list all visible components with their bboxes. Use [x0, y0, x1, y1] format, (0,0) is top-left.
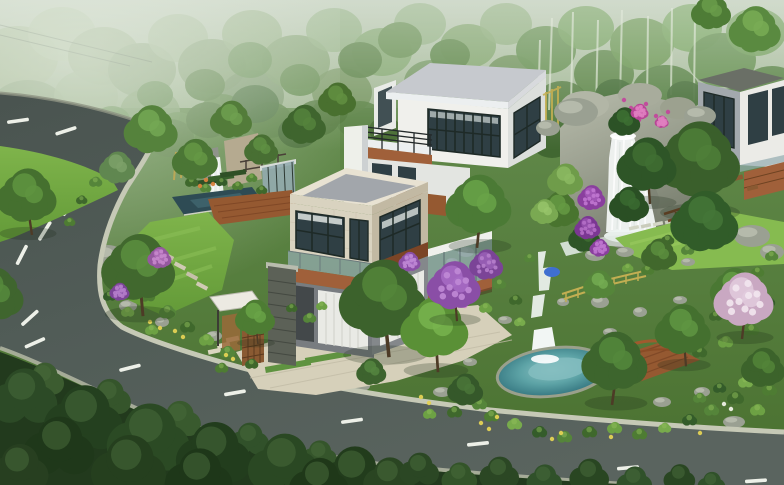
tree-foliage-light	[544, 207, 552, 215]
tree-foliage-light	[381, 284, 407, 310]
tree-foliage-light	[613, 350, 633, 370]
blossom-dot	[487, 260, 491, 264]
rock-highlight	[738, 227, 758, 237]
blossom-dot	[582, 221, 586, 225]
blossom-dot	[411, 264, 415, 268]
blossom-dot	[459, 294, 465, 300]
forest-tree-light	[626, 469, 640, 483]
flower-dot	[666, 110, 670, 114]
flower-dot	[495, 415, 499, 419]
blossom-dot	[493, 266, 497, 270]
rock-highlight	[435, 388, 445, 393]
blossom-dot	[159, 249, 163, 253]
rock-highlight	[674, 297, 682, 301]
tree-foliage-light	[558, 203, 570, 215]
blossom-dot	[163, 254, 167, 258]
blossom-dot	[749, 308, 756, 315]
bush-highlight	[732, 392, 738, 398]
rock-highlight	[538, 122, 551, 129]
blossom-dot	[593, 228, 597, 232]
blossom-dot	[409, 258, 413, 262]
forest-tree-light	[240, 425, 256, 441]
pond-foam	[531, 355, 559, 364]
tree-foliage-light	[762, 360, 775, 373]
tree-foliage-light	[710, 5, 722, 17]
blossom-dot	[482, 264, 486, 268]
bush-highlight	[224, 347, 230, 353]
tree-shadow	[657, 359, 710, 371]
bush-highlight	[249, 174, 253, 178]
tree-foliage-light	[753, 21, 769, 37]
blossom-dot	[591, 223, 595, 227]
bush-highlight	[697, 393, 702, 398]
blossom-dot	[591, 188, 595, 192]
blossom-dot	[756, 301, 763, 308]
flower-dot	[722, 402, 726, 406]
blossom-dot	[492, 260, 496, 264]
bush-highlight	[611, 423, 617, 429]
flower-dot	[427, 401, 431, 405]
blossom-dot	[119, 289, 123, 293]
blossom-dot	[640, 114, 644, 118]
rock-highlight	[618, 248, 628, 253]
bush-highlight	[149, 325, 154, 330]
blossom-dot	[465, 287, 471, 293]
tree-foliage-light	[116, 162, 127, 173]
blossom-dot	[452, 291, 458, 297]
blossom-dot	[463, 277, 469, 283]
tree-foliage-light	[658, 249, 669, 260]
flower-dot	[158, 326, 162, 330]
bush-highlight	[662, 423, 667, 428]
forest-tree-light	[5, 448, 29, 472]
blossom-dot	[662, 123, 666, 127]
tree-shadow	[0, 227, 57, 240]
tree-foliage-light	[703, 210, 723, 230]
flower-dot	[173, 329, 177, 333]
blossom-dot	[119, 285, 123, 289]
neighbor-villa-window	[772, 86, 784, 136]
tree-foliage-light	[681, 320, 698, 337]
rock-highlight	[121, 301, 131, 306]
blossom-dot	[599, 241, 603, 245]
tree-foliage-light	[25, 185, 43, 203]
flower-dot	[479, 421, 483, 425]
blossom-dot	[587, 197, 591, 201]
bush-highlight	[536, 427, 542, 433]
blossom-dot	[744, 280, 751, 287]
bush-highlight	[686, 415, 692, 421]
bush-highlight	[517, 318, 521, 322]
flower-dot	[231, 357, 235, 361]
bush-highlight	[235, 182, 239, 186]
blossom-dot	[657, 123, 661, 127]
flower-dot	[181, 335, 185, 339]
tree-foliage-light	[194, 152, 208, 166]
blossom-dot	[726, 299, 733, 306]
bush-highlight	[203, 335, 209, 341]
blossom-dot	[438, 285, 444, 291]
blossom-dot	[480, 256, 484, 260]
forest-tree-light	[705, 474, 716, 485]
blossom-dot	[583, 227, 587, 231]
bush-highlight	[625, 264, 629, 268]
blossom-dot	[601, 250, 605, 254]
forest-tree-light	[111, 440, 141, 470]
blossom-dot	[741, 305, 748, 312]
bush-highlight	[511, 419, 517, 425]
rock-highlight	[499, 317, 507, 321]
blossom-dot	[588, 224, 592, 228]
bush-highlight	[219, 363, 224, 368]
tree-shadow	[404, 363, 469, 378]
blossom-dot	[476, 265, 480, 269]
flower-dot	[419, 395, 423, 399]
flower-dot	[654, 114, 658, 118]
flower-dot	[698, 431, 702, 435]
tree-foliage-light	[696, 145, 721, 170]
flower-dot	[211, 182, 215, 186]
rock-highlight	[558, 101, 582, 114]
blossom-dot	[586, 190, 590, 194]
flower-dot	[622, 98, 626, 102]
tree-shadow	[429, 314, 480, 326]
forest-tree-light	[490, 459, 506, 475]
flower-dot	[224, 353, 228, 357]
blossom-dot	[154, 251, 158, 255]
tree-foliage-light	[260, 144, 270, 154]
blossom-dot	[595, 242, 599, 246]
bush-highlight	[79, 196, 83, 200]
rock-highlight	[655, 398, 665, 403]
bush-highlight	[665, 235, 670, 240]
rock-highlight	[725, 417, 737, 422]
blossom-dot	[753, 290, 760, 297]
flower-dot	[729, 407, 733, 411]
bush-highlight	[497, 279, 502, 284]
blossom-dot	[405, 256, 409, 260]
forest-tree-light	[8, 373, 35, 400]
blossom-dot	[589, 231, 593, 235]
bush-highlight	[219, 178, 223, 182]
bush-highlight	[319, 302, 323, 306]
blossom-dot	[152, 257, 156, 261]
tree-shadow	[105, 306, 175, 322]
rendering-canvas	[0, 0, 784, 485]
blossom-dot	[121, 294, 125, 298]
blossom-dot	[745, 292, 752, 299]
rock-highlight	[696, 388, 705, 393]
tree-foliage-light	[371, 367, 380, 376]
neighbor-villa-window	[748, 90, 768, 145]
bush-highlight	[488, 411, 494, 417]
tree-foliage-light	[254, 311, 266, 323]
blossom-dot	[485, 268, 489, 272]
forest-tree-light	[311, 443, 325, 457]
forest-tree-light	[672, 466, 685, 479]
forest-tree-light	[338, 451, 365, 478]
bush-highlight	[289, 304, 293, 308]
forest-tree-light	[42, 421, 71, 450]
blossom-dot	[454, 268, 460, 274]
bush-highlight	[184, 322, 190, 328]
rock-highlight	[604, 329, 612, 333]
boulder	[618, 83, 662, 107]
rock-highlight	[558, 299, 565, 303]
forest-tree-light	[305, 462, 329, 485]
forest-tree-light	[410, 455, 426, 471]
blossom-dot	[661, 119, 665, 123]
blossom-dot	[634, 113, 638, 117]
bush-highlight	[769, 251, 774, 256]
flower-dot	[609, 435, 613, 439]
tree-foliage-light	[230, 112, 243, 125]
blossom-dot	[580, 227, 584, 231]
blossom-dot	[594, 202, 598, 206]
bush-highlight	[259, 186, 263, 190]
flower-dot	[550, 437, 554, 441]
blossom-dot	[735, 298, 742, 305]
blossom-dot	[406, 261, 410, 265]
bush-highlight	[708, 405, 714, 411]
tree-shadow	[237, 339, 275, 348]
blossom-dot	[580, 231, 584, 235]
blossom-dot	[489, 270, 493, 274]
tree-foliage-light	[598, 279, 608, 289]
forest-tree-light	[451, 465, 465, 479]
bush-highlight	[717, 383, 722, 388]
rock-highlight	[687, 108, 705, 117]
bush-highlight	[483, 303, 488, 308]
bush-highlight	[67, 218, 71, 222]
tree-foliage-light	[303, 117, 316, 130]
blossom-dot	[599, 245, 603, 249]
rock-highlight	[634, 308, 642, 313]
blossom-dot	[487, 254, 491, 258]
blossom-dot	[592, 194, 596, 198]
blossom-dot	[584, 201, 588, 205]
blossom-dot	[639, 109, 643, 113]
tree-foliage-light	[336, 93, 347, 104]
rock-highlight	[682, 259, 690, 263]
tree-shadow	[449, 239, 512, 254]
tree-foliage-light	[149, 120, 165, 136]
blossom-dot	[583, 197, 587, 201]
tree-foliage-light	[645, 154, 663, 172]
tree-foliage-light	[477, 193, 497, 213]
blossom-dot	[732, 284, 739, 291]
blossom-dot	[597, 198, 601, 202]
forest-tree-light	[65, 390, 97, 422]
forest-tree-light	[580, 461, 596, 477]
tree-foliage-light	[564, 174, 575, 185]
blossom-dot	[440, 293, 446, 299]
villa-landscape-rendering	[0, 0, 784, 485]
tree-foliage-light	[628, 198, 640, 210]
bush-highlight	[636, 429, 642, 435]
tree-shadow	[717, 331, 774, 344]
bush-highlight	[307, 313, 312, 318]
blossom-dot	[477, 269, 481, 273]
forest-tree-light	[267, 438, 296, 467]
bush-highlight	[93, 177, 98, 182]
tree-foliage-light	[623, 116, 633, 126]
blossom-dot	[594, 250, 598, 254]
blossom-dot	[590, 200, 594, 204]
blossom-dot	[728, 308, 735, 315]
blossom-dot	[156, 257, 160, 261]
blossom-dot	[159, 254, 163, 258]
blossom-dot	[115, 286, 119, 290]
blossom-dot	[455, 279, 461, 285]
blossom-dot	[114, 294, 118, 298]
blossom-dot	[446, 284, 452, 290]
blossom-dot	[596, 193, 600, 197]
blossom-dot	[153, 261, 157, 265]
bush-highlight	[203, 184, 207, 188]
bush-highlight	[586, 427, 592, 433]
blossom-dot	[587, 219, 591, 223]
flower-dot	[559, 431, 563, 435]
forest-tree-light	[183, 453, 210, 480]
blossom-dot	[444, 272, 450, 278]
forest-tree-light	[377, 461, 398, 482]
forest-tree-light	[536, 467, 550, 481]
flower-dot	[198, 184, 202, 188]
blossom-dot	[409, 254, 413, 258]
flower-dot	[204, 178, 208, 182]
bush-highlight	[513, 295, 518, 300]
bush-highlight	[754, 405, 760, 411]
blossom-dot	[161, 261, 165, 265]
flower-dot	[644, 102, 648, 106]
rock-highlight	[464, 359, 472, 363]
blossom-dot	[403, 264, 407, 268]
bush-highlight	[249, 359, 254, 364]
blossom-dot	[635, 106, 639, 110]
bush-highlight	[527, 254, 531, 258]
bush-highlight	[451, 407, 457, 413]
tree-foliage-light	[464, 384, 475, 395]
bush-highlight	[748, 325, 754, 331]
blossom-dot	[639, 105, 643, 109]
flower-dot	[487, 427, 491, 431]
tree-shadow	[585, 396, 648, 411]
bush-highlight	[427, 409, 432, 414]
blossom-dot	[164, 258, 168, 262]
bush-highlight	[755, 267, 760, 272]
blue-pool-accent	[544, 267, 560, 277]
